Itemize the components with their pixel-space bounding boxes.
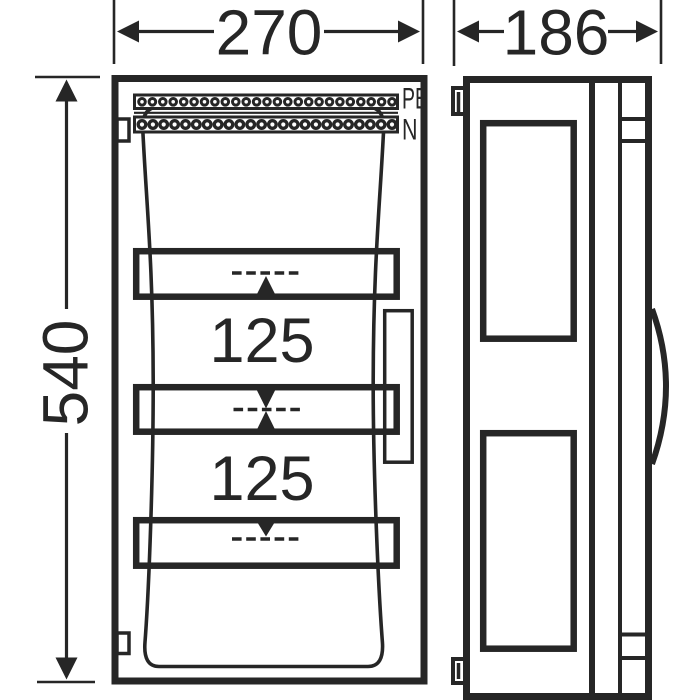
svg-text:N: N [402,114,418,147]
svg-text:125: 125 [209,444,314,514]
svg-text:186: 186 [503,0,610,69]
svg-text:125: 125 [209,306,314,376]
svg-text:270: 270 [216,0,323,69]
svg-text:540: 540 [30,320,102,427]
